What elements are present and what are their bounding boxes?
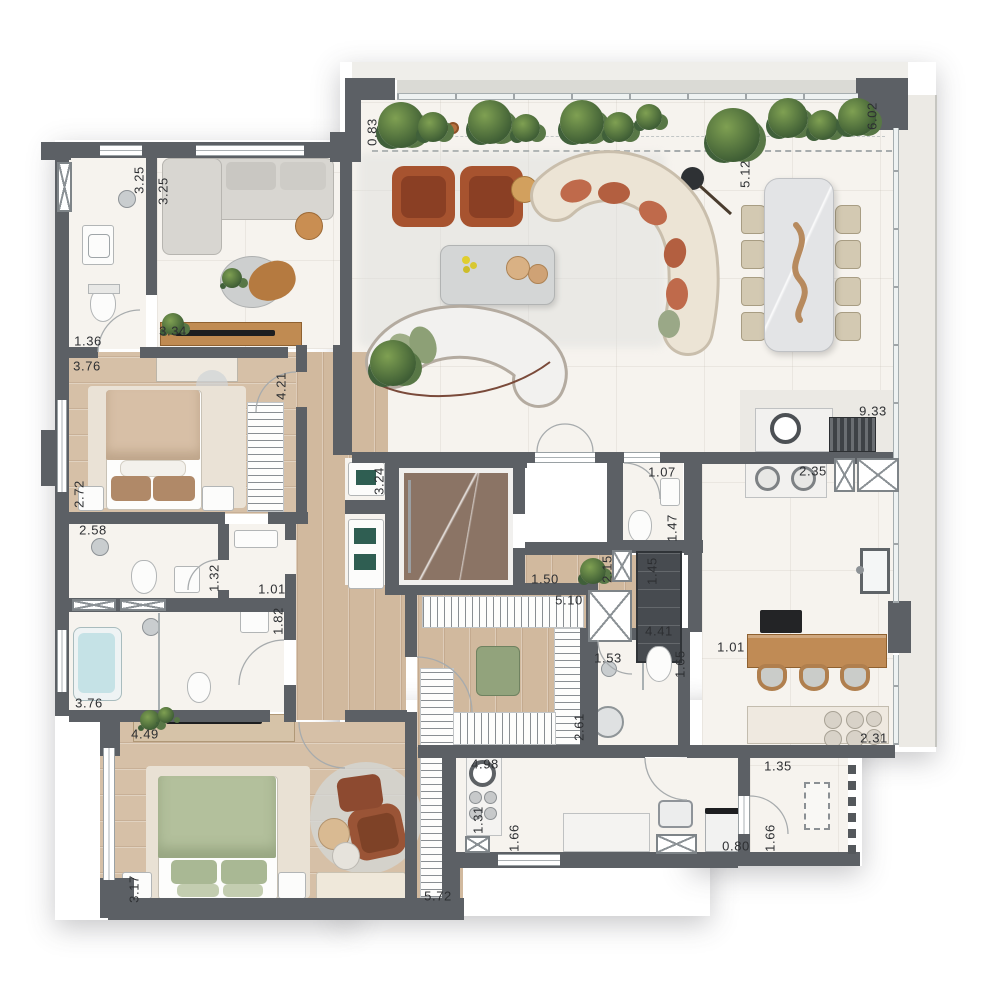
dimension-labels-layer: 0.833.253.251.363.343.764.212.722.581.32… [0,0,981,1000]
dimension-label: 3.24 [373,467,386,495]
dimension-label: 1.07 [648,466,676,479]
dimension-label: 1.32 [208,564,221,592]
dimension-label: 1.36 [74,335,102,348]
dimension-label: 1.65 [674,650,687,678]
dimension-label: 0.83 [366,118,379,146]
dimension-label: 1.53 [594,652,622,665]
dimension-label: 3.25 [157,177,170,205]
dimension-label: 2.15 [601,555,614,583]
dimension-label: 4.21 [275,372,288,400]
dimension-label: 9.33 [859,405,887,418]
dimension-label: 1.82 [272,607,285,635]
dimension-label: 6.02 [866,102,879,130]
dimension-label: 2.58 [79,524,107,537]
dimension-label: 3.25 [133,166,146,194]
dimension-label: 1.45 [646,557,659,585]
dimension-label: 2.72 [73,480,86,508]
dimension-label: 1.01 [258,583,286,596]
dimension-label: 3.17 [128,875,141,903]
dimension-label: 1.01 [717,641,745,654]
dimension-label: 2.61 [573,713,586,741]
dimension-label: 5.72 [424,890,452,903]
dimension-label: 1.66 [508,824,521,852]
dimension-label: 4.41 [645,625,673,638]
dimension-label: 1.47 [666,514,679,542]
floor-plan: 0.833.253.251.363.343.764.212.722.581.32… [0,0,981,1000]
dimension-label: 3.34 [159,325,187,338]
dimension-label: 4.98 [471,758,499,771]
dimension-label: 5.12 [739,160,752,188]
dimension-label: 4.49 [131,728,159,741]
dimension-label: 2.35 [799,465,827,478]
dimension-label: 1.66 [764,824,777,852]
dimension-label: 1.35 [764,760,792,773]
dimension-label: 5.10 [555,594,583,607]
dimension-label: 2.31 [860,732,888,745]
dimension-label: 1.31 [472,806,485,834]
dimension-label: 0.80 [722,840,750,853]
dimension-label: 3.76 [73,360,101,373]
dimension-label: 3.76 [75,697,103,710]
dimension-label: 1.50 [531,573,559,586]
